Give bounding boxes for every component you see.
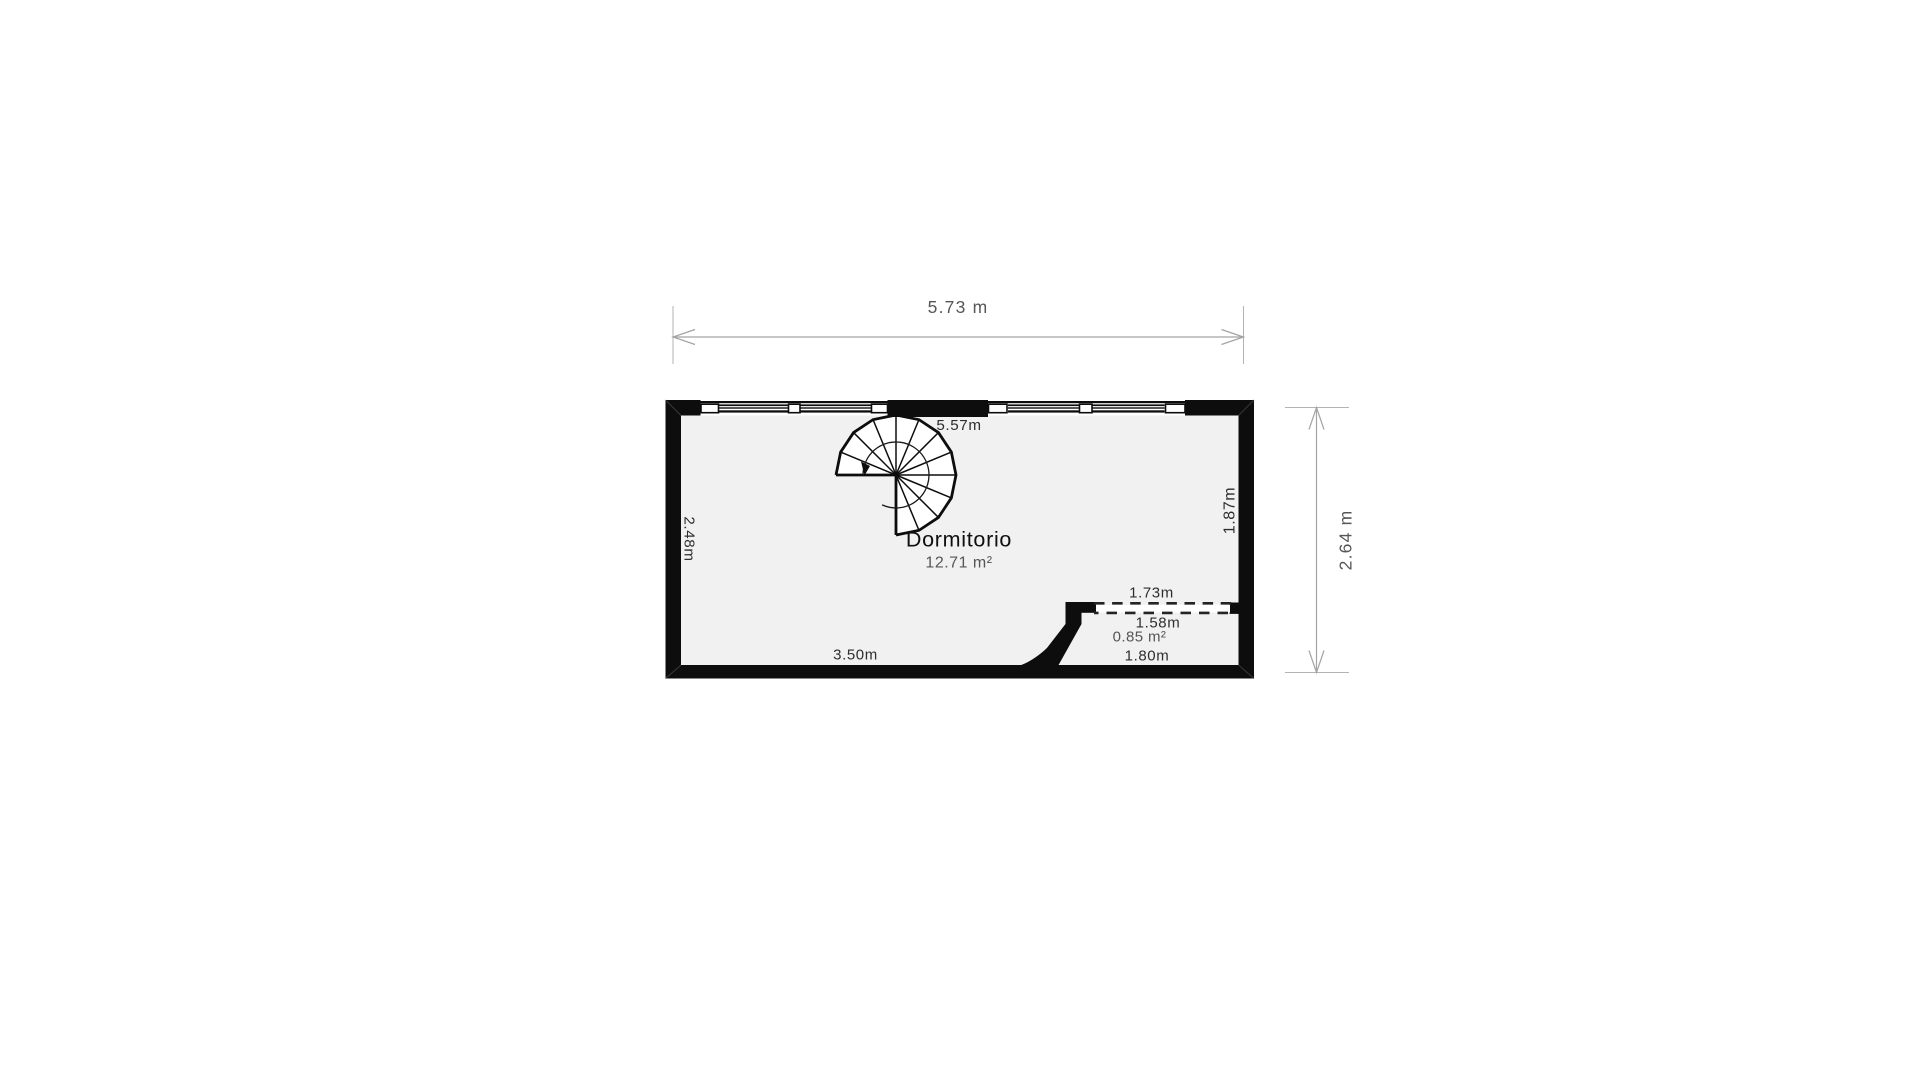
svg-text:Dormitorio: Dormitorio (906, 528, 1012, 552)
svg-text:1.73m: 1.73m (1129, 585, 1174, 602)
svg-text:5.57m: 5.57m (936, 417, 981, 434)
svg-text:1.80m: 1.80m (1125, 648, 1170, 665)
svg-text:5.73 m: 5.73 m (928, 297, 989, 317)
svg-text:0.85 m²: 0.85 m² (1113, 629, 1167, 646)
svg-text:2.64 m: 2.64 m (1336, 510, 1356, 571)
svg-text:1.87m: 1.87m (1222, 487, 1239, 534)
svg-text:2.48m: 2.48m (681, 516, 698, 561)
svg-text:3.50m: 3.50m (833, 647, 878, 664)
svg-text:12.71 m²: 12.71 m² (925, 555, 992, 572)
